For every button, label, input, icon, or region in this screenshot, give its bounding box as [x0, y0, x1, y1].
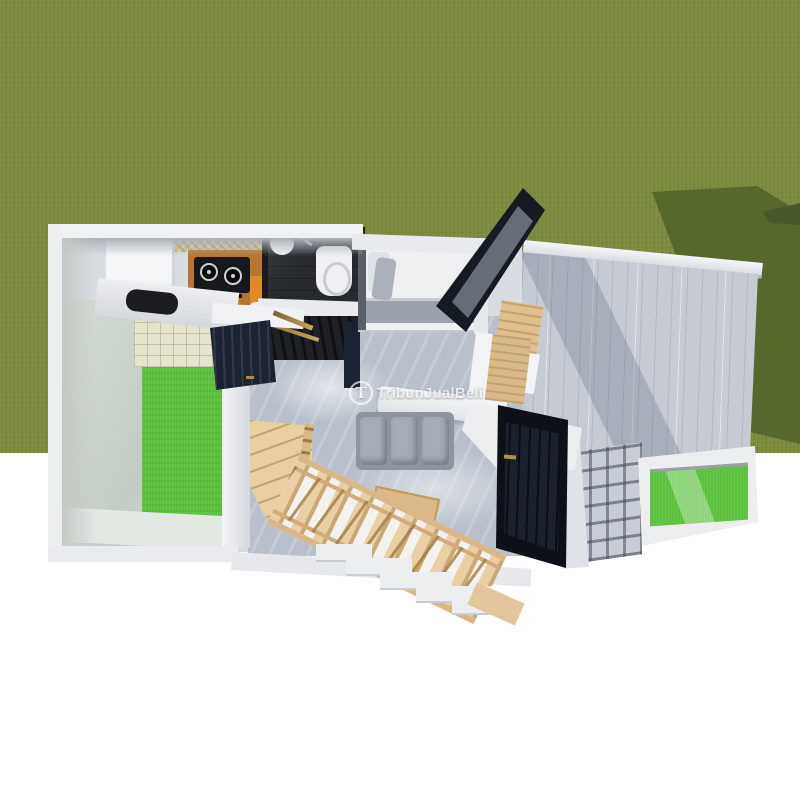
sofa-cushion [391, 417, 418, 465]
outer-wall-left-face [62, 238, 96, 542]
stove-cooktop [194, 257, 250, 293]
outer-wall-top-face [62, 238, 362, 256]
partition-wall [222, 386, 250, 548]
burner-icon [224, 267, 242, 285]
courtyard-grass-floor [142, 346, 222, 518]
sofa [356, 412, 454, 470]
floorplan-render: T TribunJualBeli [0, 0, 800, 800]
burner-icon [200, 263, 218, 281]
stair-bottom-tread [467, 582, 524, 625]
outer-wall-bottom [48, 546, 238, 562]
bench-handle [246, 376, 254, 379]
outer-wall-left [48, 224, 62, 562]
watermark-logo-icon: T [349, 381, 373, 405]
bed-headboard [358, 246, 366, 330]
outer-wall-top [48, 224, 363, 238]
planter-grass [650, 463, 748, 527]
navy-slat-bench [206, 318, 276, 390]
sofa-cushion [360, 417, 387, 465]
watermark: T TribunJualBeli [349, 381, 483, 405]
sofa-cushion [422, 417, 449, 465]
watermark-text: TribunJualBeli [377, 385, 483, 402]
cabinet-wood-top [485, 334, 532, 404]
